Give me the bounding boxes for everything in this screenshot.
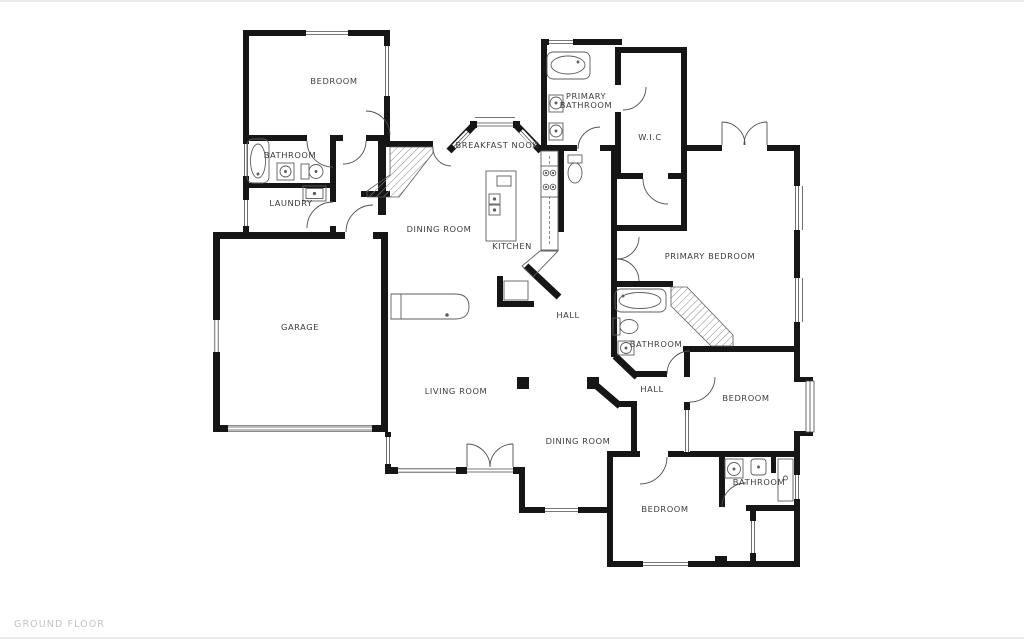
label-dining-room-upper: DINING ROOM (407, 224, 472, 234)
room-labels: BEDROOM BATHROOM LAUNDRY GARAGE DINING R… (264, 76, 785, 514)
label-bedroom-middle: BEDROOM (722, 393, 769, 403)
floor-plan-canvas: BEDROOM BATHROOM LAUNDRY GARAGE DINING R… (0, 0, 1024, 640)
label-primary-bathroom-2: BATHROOM (560, 100, 612, 110)
label-garage: GARAGE (281, 322, 319, 332)
label-living-room: LIVING ROOM (425, 386, 488, 396)
label-laundry: LAUNDRY (269, 198, 313, 208)
label-bedroom-top-left: BEDROOM (310, 76, 357, 86)
floor-title: GROUND FLOOR (14, 619, 105, 630)
label-wic: W.I.C (638, 132, 662, 142)
label-kitchen: KITCHEN (492, 241, 532, 251)
stairs (367, 147, 433, 197)
label-dining-room-lower: DINING ROOM (546, 436, 611, 446)
label-bathroom-middle: BATHROOM (630, 339, 682, 349)
page-border-lines (0, 1, 1024, 638)
label-bedroom-bottom: BEDROOM (641, 504, 688, 514)
label-breakfast-nook: BREAKFAST NOOK (456, 140, 539, 150)
label-primary-bedroom: PRIMARY BEDROOM (665, 251, 756, 261)
floor-plan-page: BEDROOM BATHROOM LAUNDRY GARAGE DINING R… (0, 0, 1024, 640)
label-bathroom-bottom: BATHROOM (733, 477, 785, 487)
label-bathroom-left: BATHROOM (264, 150, 316, 160)
fixtures (247, 52, 793, 501)
shower-hatch (671, 287, 733, 346)
label-hall-lower: HALL (640, 384, 663, 394)
label-hall-center: HALL (556, 310, 579, 320)
walls (213, 30, 813, 567)
